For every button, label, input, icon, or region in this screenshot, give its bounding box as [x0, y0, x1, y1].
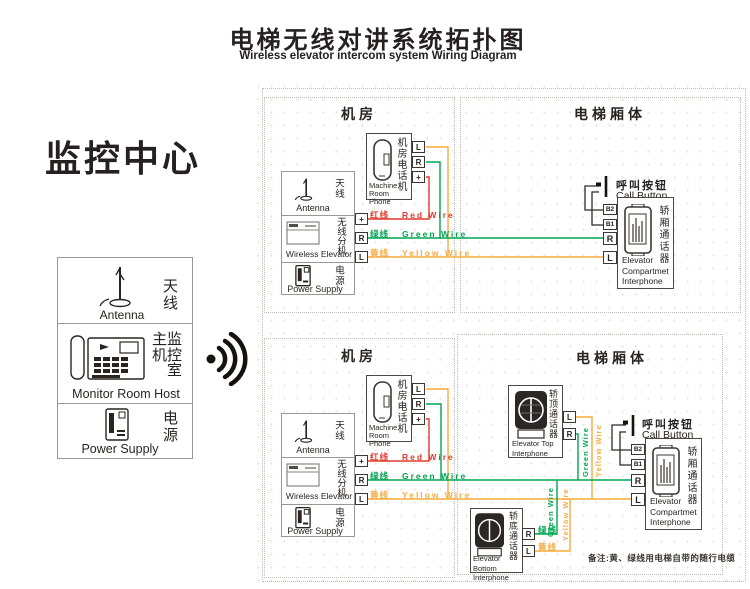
terminal-r: R: [412, 398, 425, 410]
top-interphone-cn: 轿顶通话器: [547, 389, 560, 439]
terminal-r: R: [563, 428, 576, 440]
bottom-elevator-car-label: 电梯厢体: [576, 348, 648, 368]
terminal-b1: B1: [631, 459, 645, 470]
terminal-plus: +: [412, 413, 425, 425]
top-compartment-interphone-box: 轿厢通话器 Elevator Compartmet Interphone: [617, 197, 674, 289]
panel-host-en: Monitor Room Host: [58, 387, 194, 401]
yellow-wire-vertical-label: Yellow Wire: [561, 488, 570, 541]
panel-antenna-row: 天线 Antenna: [58, 258, 192, 324]
station-antenna-en: Antenna: [282, 445, 344, 455]
terminal-r: R: [603, 232, 617, 245]
station-antenna-row: 天线 Antenna: [282, 414, 354, 458]
yellow-wire-stub-label: 黄线: [538, 541, 557, 553]
bottom-compartment-interphone-box: 轿厢通话器 Elevator Compartmet Interphone: [645, 438, 702, 530]
station-power-en: Power Supply: [282, 526, 348, 536]
panel-power-row: 电源 Power Supply: [58, 404, 192, 458]
terminal-r: R: [522, 528, 535, 540]
station-antenna-cn: 天线: [331, 178, 345, 199]
terminal-l: L: [603, 251, 617, 264]
bottom-interphone-en: Elevator Bottom Interphone: [473, 554, 522, 583]
green-wire-label: 绿线Green Wire: [370, 470, 467, 482]
bottom-machine-phone-en: Machine Room Phone: [369, 424, 411, 448]
elevator-top-interphone-box: 轿顶通话器 Elevator Top Interphone: [508, 385, 563, 458]
station-wireless-row: 无线分机 Wireless Elevator: [282, 216, 354, 263]
compartment-interphone-icon: [651, 445, 681, 497]
station-power-cn: 电源: [331, 507, 345, 528]
terminal-b1: B1: [603, 219, 617, 230]
station-wireless-en: Wireless Elevator: [282, 491, 356, 501]
terminal-l: L: [355, 493, 368, 505]
speaker-interphone-icon: [515, 391, 547, 439]
bottom-machine-room-label: 机房: [341, 346, 377, 366]
monitoring-center-title: 监控中心: [45, 130, 201, 182]
top-elevator-car-label: 电梯厢体: [574, 104, 646, 124]
bottom-wireless-station-box: 天线 Antenna 无线分机 Wireless Elevator 电源 Pow…: [281, 413, 355, 537]
green-wire-stub-label: 绿线: [538, 524, 557, 536]
terminal-l: L: [563, 411, 576, 423]
antenna-icon: [94, 262, 138, 310]
green-wire-vertical-label: Green Wire: [581, 427, 590, 477]
antenna-icon: [292, 417, 316, 445]
station-power-en: Power Supply: [282, 284, 348, 294]
top-elevator-car-region: [460, 97, 741, 313]
terminal-l: L: [522, 545, 535, 557]
speaker-interphone-icon: [475, 513, 504, 557]
wireless-unit-icon: [286, 463, 320, 487]
wiring-diagram-canvas: 电梯无线对讲系统拓扑图 Wireless elevator intercom s…: [0, 0, 750, 589]
red-wire-label: 红线Red Wire: [370, 209, 455, 221]
page-subtitle: Wireless elevator intercom system Wiring…: [218, 50, 538, 62]
power-supply-icon: [104, 408, 130, 442]
top-machine-phone-en: Machine Room Phone: [369, 182, 411, 206]
station-power-cn: 电源: [331, 265, 345, 286]
handset-phone-icon: [371, 139, 395, 183]
terminal-plus: +: [355, 213, 368, 225]
panel-antenna-cn: 天线: [159, 278, 180, 312]
wireless-unit-icon: [286, 221, 320, 245]
terminal-b2: B2: [631, 444, 645, 455]
compartment-interphone-icon: [623, 204, 653, 256]
station-power-row: 电源 Power Supply: [282, 505, 354, 538]
terminal-r: R: [412, 156, 425, 168]
station-power-row: 电源 Power Supply: [282, 263, 354, 296]
station-antenna-en: Antenna: [282, 203, 344, 213]
top-machine-room-label: 机房: [341, 104, 377, 124]
terminal-l: L: [412, 141, 425, 153]
terminal-plus: +: [355, 455, 368, 467]
terminal-l: L: [631, 493, 645, 506]
green-wire-label: 绿线Green Wire: [370, 228, 467, 240]
terminal-r: R: [355, 474, 368, 486]
station-wireless-row: 无线分机 Wireless Elevator: [282, 458, 354, 505]
top-interphone-en: Elevator Top Interphone: [512, 439, 554, 458]
elevator-bottom-interphone-box: 轿底通话器 Elevator Bottom Interphone: [470, 508, 523, 573]
desk-phone-icon: [70, 332, 146, 382]
station-antenna-row: 天线 Antenna: [282, 172, 354, 216]
yellow-wire-label: 黄线Yellow Wire: [370, 247, 471, 259]
panel-antenna-en: Antenna: [66, 308, 178, 322]
antenna-icon: [292, 175, 316, 203]
panel-power-cn: 电源: [159, 410, 180, 444]
top-wireless-station-box: 天线 Antenna 无线分机 Wireless Elevator 电源 Pow…: [281, 171, 355, 295]
yellow-wire-vertical-label: Yellow Wire: [594, 424, 603, 477]
panel-host-cn: 主监 机控 室: [146, 332, 182, 379]
terminal-plus: +: [412, 171, 425, 183]
yellow-wire-label: 黄线Yellow Wire: [370, 489, 471, 501]
terminal-b2: B2: [603, 204, 617, 215]
terminal-r: R: [355, 232, 368, 244]
panel-power-en: Power Supply: [58, 442, 182, 456]
terminal-l: L: [412, 383, 425, 395]
terminal-l: L: [355, 251, 368, 263]
handset-phone-icon: [371, 381, 395, 425]
station-wireless-en: Wireless Elevator: [282, 249, 356, 259]
panel-host-row: 主监 机控 室 Monitor Room Host: [58, 324, 192, 404]
red-wire-label: 红线Red Wire: [370, 451, 455, 463]
top-machine-phone-box: 机房电话机 Machine Room Phone: [366, 133, 412, 200]
compartment-en: Elevator Compartmet Interphone: [622, 255, 669, 287]
footnote: 备注:黄、绿线用电梯自带的随行电缆: [588, 552, 735, 564]
wireless-signal-icon: [203, 332, 251, 386]
compartment-en: Elevator Compartmet Interphone: [650, 496, 697, 528]
terminal-r: R: [631, 474, 645, 487]
bottom-machine-phone-box: 机房电话机 Machine Room Phone: [366, 375, 412, 442]
station-antenna-cn: 天线: [331, 420, 345, 441]
control-room-panel: 天线 Antenna 主监 机控 室 Monitor R: [57, 257, 193, 459]
